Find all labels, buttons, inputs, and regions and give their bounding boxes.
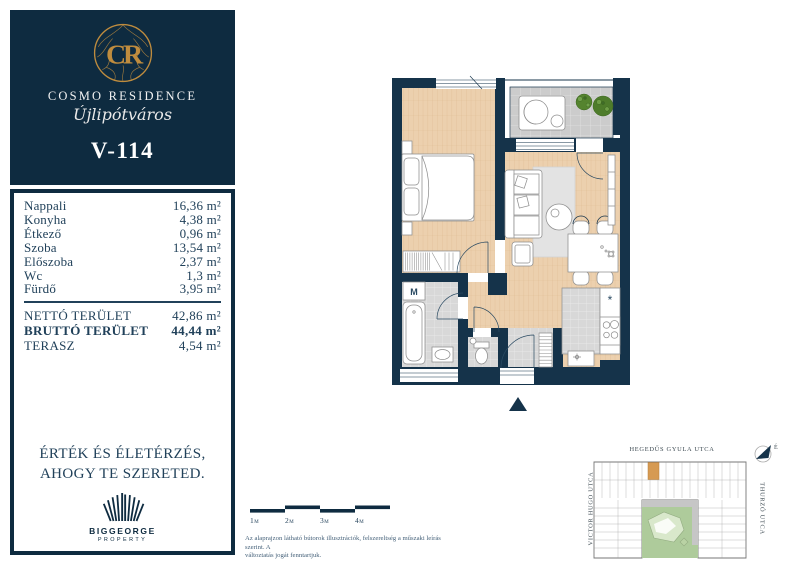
room-value: 13,54 m² bbox=[173, 241, 221, 255]
wardrobe bbox=[403, 251, 460, 272]
developer-name: BIGGEORGE bbox=[89, 526, 156, 536]
area-panel: Nappali16,36 m² Konyha4,38 m² Étkező0,96… bbox=[10, 189, 235, 555]
plant bbox=[576, 94, 592, 110]
duvet bbox=[422, 156, 474, 220]
scale-label: 1m bbox=[250, 516, 259, 525]
hall-floor bbox=[468, 282, 560, 328]
motto-line2: AHOGY TE SZERETED. bbox=[14, 465, 231, 485]
room-label: Nappali bbox=[24, 199, 67, 213]
toilet bbox=[474, 342, 489, 364]
bathtub bbox=[403, 302, 425, 364]
nightstand bbox=[402, 141, 412, 154]
room-label: Előszoba bbox=[24, 255, 73, 269]
room-value: 1,3 m² bbox=[186, 269, 221, 283]
total-label: TERASZ bbox=[24, 339, 75, 354]
coffee-table-decor bbox=[551, 209, 559, 217]
table-divider bbox=[24, 301, 221, 303]
motto-line1: ÉRTÉK ÉS ÉLETÉRZÉS, bbox=[14, 445, 231, 465]
brand-panel: CR COSMO RESIDENCE Újlipótváros V-114 bbox=[10, 10, 235, 185]
side-table-inner bbox=[515, 245, 530, 263]
area-row: Fürdő3,95 m² bbox=[24, 282, 221, 296]
motto: ÉRTÉK ÉS ÉLETÉRZÉS, AHOGY TE SZERETED. bbox=[14, 445, 231, 484]
area-row: Étkező0,96 m² bbox=[24, 227, 221, 241]
room-label: Étkező bbox=[24, 227, 61, 241]
plant bbox=[593, 96, 613, 116]
room-value: 0,96 m² bbox=[180, 227, 221, 241]
area-table: Nappali16,36 m² Konyha4,38 m² Étkező0,96… bbox=[24, 199, 221, 353]
washer-label: M bbox=[410, 287, 418, 297]
brand-monogram: CR bbox=[105, 39, 143, 70]
room-value: 16,36 m² bbox=[173, 199, 221, 213]
room-value: 2,37 m² bbox=[180, 255, 221, 269]
north-arrow-icon bbox=[509, 397, 527, 411]
disclaimer-line2: változtatás jogát fenntartjuk. bbox=[245, 552, 445, 561]
nightstand bbox=[402, 222, 412, 235]
tall-cabinets bbox=[608, 155, 615, 225]
scale-label: 4m bbox=[355, 516, 364, 525]
sofa bbox=[505, 170, 542, 238]
total-row: NETTÓ TERÜLET42,86 m² bbox=[24, 309, 221, 324]
courtyard-walkway bbox=[642, 500, 698, 507]
floorplan: M * bbox=[370, 55, 660, 415]
disclaimer-line1: Az alaprajzon látható bútorok illusztrác… bbox=[245, 535, 445, 552]
highlighted-unit bbox=[648, 463, 659, 480]
kitchen-counter bbox=[562, 288, 600, 354]
scale-label: 2m bbox=[285, 516, 294, 525]
brand-subtitle: Újlipótváros bbox=[73, 105, 172, 124]
coffee-table bbox=[546, 204, 572, 230]
table-flower-decor bbox=[608, 251, 614, 257]
room-label: Szoba bbox=[24, 241, 57, 255]
kitchen-symbol: * bbox=[608, 293, 613, 307]
total-value: 44,44 m² bbox=[171, 324, 221, 339]
total-label: NETTÓ TERÜLET bbox=[24, 309, 131, 324]
stove bbox=[600, 317, 620, 345]
brand-logo-icon: CR bbox=[92, 22, 154, 84]
room-label: Fürdő bbox=[24, 282, 56, 296]
total-value: 42,86 m² bbox=[172, 309, 221, 324]
area-row: Konyha4,38 m² bbox=[24, 213, 221, 227]
area-row: Előszoba2,37 m² bbox=[24, 255, 221, 269]
table-decor bbox=[601, 246, 604, 249]
area-row: Nappali16,36 m² bbox=[24, 199, 221, 213]
area-row: Wc1,3 m² bbox=[24, 269, 221, 283]
street-label-right: THURZÓ UTCA bbox=[759, 463, 766, 555]
bathroom-sink bbox=[432, 347, 453, 362]
kitchen-sink bbox=[568, 351, 594, 366]
total-label: BRUTTÓ TERÜLET bbox=[24, 324, 148, 339]
wc-basin bbox=[470, 338, 476, 344]
sidebar: CR COSMO RESIDENCE Újlipótváros V-114 Na… bbox=[10, 10, 235, 555]
scale-label: 3m bbox=[320, 516, 329, 525]
site-plan bbox=[592, 460, 748, 560]
pillow bbox=[404, 188, 419, 215]
courtyard-walkway-right bbox=[692, 507, 698, 545]
developer-division: PROPERTY bbox=[98, 537, 147, 543]
brand-name: COSMO RESIDENCE bbox=[48, 89, 197, 104]
total-row: TERASZ4,54 m² bbox=[24, 339, 221, 354]
brochure-page: CR COSMO RESIDENCE Újlipótváros V-114 Na… bbox=[0, 0, 800, 565]
biggeorge-crown-icon bbox=[100, 490, 146, 524]
shoe-cabinet bbox=[539, 333, 552, 367]
unit-id: V-114 bbox=[91, 138, 154, 164]
compass-north-label: É bbox=[774, 443, 778, 451]
room-label: Konyha bbox=[24, 213, 66, 227]
developer-logo: BIGGEORGE PROPERTY bbox=[14, 490, 231, 543]
total-value: 4,54 m² bbox=[179, 339, 221, 354]
street-label-top: HEGEDŰS GYULA UTCA bbox=[592, 446, 752, 453]
total-row-gross: BRUTTÓ TERÜLET44,44 m² bbox=[24, 324, 221, 339]
pillow bbox=[404, 158, 419, 185]
room-label: Wc bbox=[24, 269, 42, 283]
table-decor bbox=[605, 250, 607, 252]
compass-icon: É bbox=[753, 441, 783, 465]
disclaimer: Az alaprajzon látható bútorok illusztrác… bbox=[245, 535, 445, 561]
scale-bar: 1m 2m 3m 4m bbox=[245, 502, 395, 528]
room-value: 3,95 m² bbox=[180, 282, 221, 296]
lounge-chair bbox=[519, 96, 565, 130]
area-row: Szoba13,54 m² bbox=[24, 241, 221, 255]
room-value: 4,38 m² bbox=[180, 213, 221, 227]
scale-bar-icon bbox=[245, 503, 395, 515]
